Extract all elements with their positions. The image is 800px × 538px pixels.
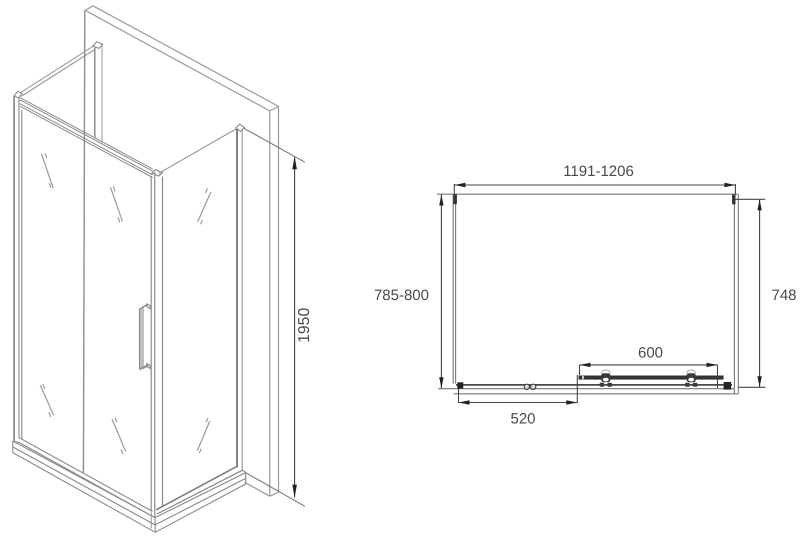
svg-text:600: 600: [638, 345, 663, 362]
svg-text:1950: 1950: [296, 308, 313, 343]
svg-text:1191-1206: 1191-1206: [563, 163, 634, 180]
svg-text:520: 520: [510, 411, 535, 428]
svg-text:748: 748: [772, 287, 797, 304]
svg-text:785-800: 785-800: [374, 287, 429, 304]
